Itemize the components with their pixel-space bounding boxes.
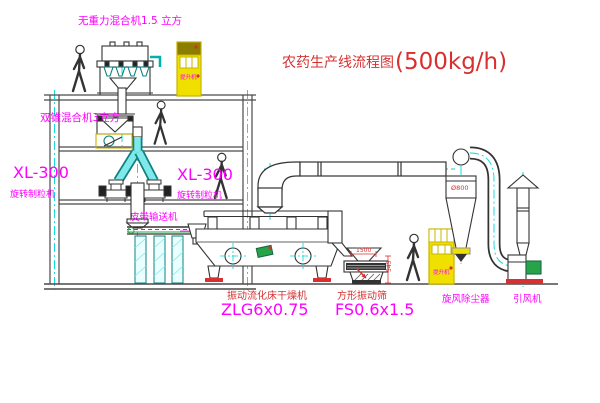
granulator-name-mid-label: 旋转制粒机 (177, 189, 222, 201)
y-splitter-duct (118, 137, 154, 181)
ground-line (44, 284, 558, 289)
sieve-width-dim: 1500 (356, 247, 371, 254)
bucket-elevator-right: 提升机 (429, 229, 454, 284)
flow-diagram: 提升机 (0, 0, 600, 403)
fan-label: 引风机 (513, 293, 542, 305)
capacity-text: (500kg/h) (395, 49, 507, 75)
page-title: 农药生产线流程图 (282, 55, 394, 71)
sieve-height-dim: 545 (386, 260, 393, 272)
sieve-model-label: FS0.6x1.5 (335, 300, 414, 319)
conveyor-support-pillars (135, 236, 183, 283)
cyclone-label: 旋风除尘器 (442, 293, 490, 305)
fluid-bed-dryer (188, 211, 352, 282)
induced-draft-fan (506, 255, 543, 284)
elevator-top-label: 提升机 (180, 73, 197, 81)
granulator-name-left-label: 旋转制粒机 (10, 188, 55, 200)
belt-conveyor-label: 皮带输送机 (130, 211, 178, 223)
dryer-model-label: ZLG6x0.75 (221, 300, 309, 319)
granulator-model-left-label: XL-300 (13, 163, 69, 182)
worker-figure (73, 45, 85, 91)
exhaust-elbow-duct (258, 162, 446, 213)
granulator-left-unit (99, 180, 133, 202)
gravity-free-mixer (97, 42, 160, 114)
elevator-right-label: 提升机 (433, 268, 450, 276)
cyclone-diameter-dim: Ø800 (451, 184, 469, 192)
cone-mixer-label: 双锥混合机3立方 (40, 111, 120, 124)
exhaust-stack (508, 175, 538, 255)
gravity-mixer-label: 无重力混合机1.5 立方 (78, 14, 182, 27)
cyclone-outlet-pipe (470, 153, 514, 266)
worker-figure (407, 234, 419, 280)
diagram-canvas: 提升机 (0, 0, 600, 403)
worker-figure (155, 101, 166, 144)
granulator-model-mid-label: XL-300 (177, 165, 233, 184)
bucket-elevator-top: 提升机 (177, 42, 201, 96)
